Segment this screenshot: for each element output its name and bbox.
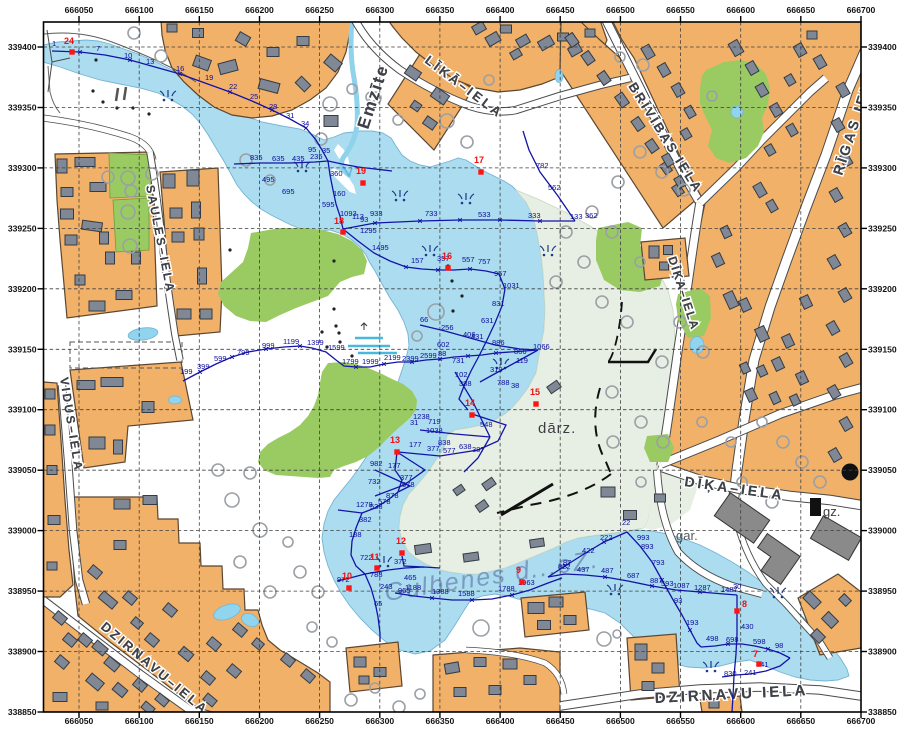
svg-text:193: 193 — [686, 618, 699, 627]
svg-text:339150: 339150 — [868, 344, 897, 354]
svg-text:666650: 666650 — [786, 716, 815, 726]
svg-text:666150: 666150 — [185, 5, 214, 15]
svg-text:893: 893 — [641, 542, 654, 551]
svg-text:733: 733 — [425, 209, 438, 218]
svg-text:338900: 338900 — [8, 647, 37, 657]
svg-text:1087: 1087 — [673, 581, 690, 590]
svg-text:13: 13 — [390, 435, 400, 445]
svg-text:1999: 1999 — [362, 357, 379, 366]
svg-text:157: 157 — [411, 256, 424, 265]
svg-text:666350: 666350 — [426, 716, 455, 726]
svg-text:666150: 666150 — [185, 716, 214, 726]
svg-text:87: 87 — [563, 558, 571, 567]
svg-text:98: 98 — [775, 641, 783, 650]
svg-text:339100: 339100 — [8, 405, 37, 415]
svg-text:2599: 2599 — [420, 351, 437, 360]
svg-text:757: 757 — [478, 257, 491, 266]
svg-text:339000: 339000 — [8, 526, 37, 536]
svg-text:666350: 666350 — [426, 5, 455, 15]
svg-text:243: 243 — [380, 582, 393, 591]
svg-text:1031: 1031 — [503, 281, 520, 290]
svg-text:799: 799 — [237, 348, 250, 357]
svg-text:2199: 2199 — [384, 353, 401, 362]
svg-text:16: 16 — [442, 251, 452, 261]
svg-text:666600: 666600 — [726, 716, 755, 726]
svg-text:15: 15 — [530, 387, 540, 397]
svg-text:177: 177 — [409, 440, 422, 449]
svg-text:10: 10 — [124, 51, 132, 60]
svg-text:31: 31 — [286, 111, 294, 120]
svg-text:339200: 339200 — [8, 284, 37, 294]
svg-text:18: 18 — [334, 216, 344, 226]
svg-text:1066: 1066 — [533, 342, 550, 351]
svg-text:602: 602 — [437, 340, 450, 349]
svg-text:866: 866 — [514, 347, 527, 356]
svg-text:666500: 666500 — [606, 5, 635, 15]
svg-text:65: 65 — [374, 599, 382, 608]
svg-text:1: 1 — [52, 39, 56, 48]
svg-text:666250: 666250 — [305, 716, 334, 726]
svg-text:372: 372 — [394, 557, 407, 566]
svg-text:338850: 338850 — [868, 707, 897, 717]
svg-text:435: 435 — [292, 154, 305, 163]
svg-text:598: 598 — [753, 637, 766, 646]
svg-text:1588: 1588 — [458, 589, 475, 598]
svg-text:788: 788 — [370, 570, 383, 579]
svg-text:235: 235 — [310, 152, 323, 161]
svg-text:339300: 339300 — [868, 163, 897, 173]
svg-text:599: 599 — [214, 354, 227, 363]
svg-text:11: 11 — [370, 552, 380, 562]
svg-text:465: 465 — [404, 573, 417, 582]
svg-text:339400: 339400 — [8, 42, 37, 52]
svg-text:732: 732 — [368, 477, 381, 486]
svg-text:957: 957 — [494, 269, 507, 278]
svg-text:593: 593 — [661, 579, 674, 588]
svg-text:22: 22 — [622, 518, 630, 527]
svg-text:35: 35 — [322, 146, 330, 155]
svg-text:1599: 1599 — [328, 343, 345, 352]
svg-text:339150: 339150 — [8, 344, 37, 354]
svg-text:338950: 338950 — [8, 586, 37, 596]
svg-text:14: 14 — [465, 398, 475, 408]
svg-text:25: 25 — [250, 92, 258, 101]
svg-text:1799: 1799 — [342, 357, 359, 366]
svg-text:498: 498 — [706, 634, 719, 643]
svg-text:338900: 338900 — [868, 647, 897, 657]
svg-text:256: 256 — [441, 323, 454, 332]
svg-text:430: 430 — [741, 622, 754, 631]
svg-text:339050: 339050 — [8, 465, 37, 475]
svg-text:333: 333 — [528, 211, 541, 220]
svg-text:9: 9 — [516, 565, 521, 575]
svg-text:339200: 339200 — [868, 284, 897, 294]
svg-text:886: 886 — [492, 338, 505, 347]
svg-text:19: 19 — [205, 73, 213, 82]
svg-text:7: 7 — [753, 649, 758, 659]
svg-text:22: 22 — [229, 82, 237, 91]
svg-text:7: 7 — [96, 44, 100, 53]
svg-text:698: 698 — [726, 635, 739, 644]
svg-text:666600: 666600 — [726, 5, 755, 15]
svg-text:338850: 338850 — [8, 707, 37, 717]
svg-text:999: 999 — [262, 341, 275, 350]
svg-text:666300: 666300 — [365, 716, 394, 726]
svg-text:548: 548 — [480, 420, 493, 429]
svg-text:19: 19 — [356, 166, 366, 176]
svg-text:487: 487 — [601, 566, 614, 575]
svg-text:1495: 1495 — [372, 243, 389, 252]
svg-text:377: 377 — [427, 444, 440, 453]
svg-text:362: 362 — [585, 211, 598, 220]
svg-text:830: 830 — [724, 669, 737, 678]
svg-text:495: 495 — [262, 175, 275, 184]
svg-text:666200: 666200 — [245, 716, 274, 726]
svg-text:24: 24 — [64, 36, 74, 46]
svg-text:8: 8 — [742, 599, 747, 609]
svg-text:28: 28 — [269, 102, 277, 111]
svg-text:66: 66 — [420, 315, 428, 324]
svg-text:666400: 666400 — [486, 716, 515, 726]
svg-text:666250: 666250 — [305, 5, 334, 15]
svg-text:388: 388 — [459, 379, 472, 388]
svg-text:695: 695 — [282, 187, 295, 196]
svg-text:1295: 1295 — [360, 226, 377, 235]
svg-text:160: 160 — [333, 189, 346, 198]
svg-text:199: 199 — [180, 367, 193, 376]
svg-text:666650: 666650 — [786, 5, 815, 15]
svg-text:666450: 666450 — [546, 5, 575, 15]
svg-text:638: 638 — [459, 442, 472, 451]
svg-text:119: 119 — [516, 356, 528, 365]
svg-text:666050: 666050 — [65, 716, 94, 726]
svg-text:222: 222 — [600, 533, 613, 542]
svg-text:339250: 339250 — [868, 223, 897, 233]
svg-text:933: 933 — [370, 209, 383, 218]
svg-text:241: 241 — [744, 668, 757, 677]
svg-text:339100: 339100 — [868, 405, 897, 415]
svg-text:13: 13 — [146, 57, 154, 66]
svg-text:1038: 1038 — [426, 426, 443, 435]
svg-text:1287: 1287 — [694, 583, 711, 592]
svg-text:788: 788 — [497, 378, 510, 387]
svg-text:339050: 339050 — [868, 465, 897, 475]
svg-text:339250: 339250 — [8, 223, 37, 233]
svg-text:12: 12 — [396, 536, 406, 546]
svg-text:16: 16 — [176, 64, 184, 73]
svg-text:782: 782 — [536, 161, 549, 170]
svg-text:666700: 666700 — [847, 5, 876, 15]
svg-text:666550: 666550 — [666, 716, 695, 726]
svg-text:437: 437 — [577, 565, 590, 574]
svg-text:339300: 339300 — [8, 163, 37, 173]
svg-text:835: 835 — [250, 153, 263, 162]
svg-text:339400: 339400 — [868, 42, 897, 52]
svg-text:34: 34 — [301, 119, 309, 128]
svg-text:177: 177 — [388, 461, 401, 470]
svg-text:93: 93 — [360, 215, 368, 224]
svg-text:338950: 338950 — [868, 586, 897, 596]
svg-text:538: 538 — [370, 502, 383, 511]
svg-text:687: 687 — [627, 571, 640, 580]
svg-text:339350: 339350 — [8, 103, 37, 113]
svg-text:10: 10 — [342, 571, 352, 581]
svg-text:666100: 666100 — [125, 716, 154, 726]
svg-text:635: 635 — [272, 154, 285, 163]
svg-text:339350: 339350 — [868, 103, 897, 113]
svg-text:631: 631 — [481, 316, 494, 325]
svg-text:dārz.: dārz. — [538, 420, 576, 437]
svg-text:422: 422 — [582, 546, 595, 555]
svg-text:562: 562 — [548, 183, 561, 192]
svg-text:666400: 666400 — [486, 5, 515, 15]
svg-text:102: 102 — [455, 370, 468, 379]
svg-text:382: 382 — [359, 515, 372, 524]
svg-text:965: 965 — [398, 586, 411, 595]
svg-text:557: 557 — [462, 255, 475, 264]
svg-text:38: 38 — [511, 381, 519, 390]
svg-text:666050: 666050 — [65, 5, 94, 15]
svg-text:666450: 666450 — [546, 716, 575, 726]
svg-text:982: 982 — [370, 459, 383, 468]
svg-text:406: 406 — [463, 330, 476, 339]
svg-text:17: 17 — [474, 155, 484, 165]
svg-text:831: 831 — [492, 299, 505, 308]
svg-text:399: 399 — [197, 362, 210, 371]
svg-text:666700: 666700 — [847, 716, 876, 726]
svg-text:666500: 666500 — [606, 716, 635, 726]
svg-text:133: 133 — [570, 212, 583, 221]
svg-text:1788: 1788 — [498, 584, 515, 593]
svg-text:1388: 1388 — [432, 587, 449, 596]
svg-text:1399: 1399 — [307, 338, 324, 347]
svg-text:595: 595 — [322, 200, 335, 209]
svg-text:678: 678 — [402, 480, 415, 489]
svg-text:387: 387 — [472, 445, 485, 454]
svg-text:188: 188 — [349, 530, 362, 539]
svg-text:1199: 1199 — [283, 337, 299, 346]
svg-text:993: 993 — [637, 533, 650, 542]
svg-text:360: 360 — [330, 169, 343, 178]
svg-text:319: 319 — [490, 365, 503, 374]
svg-text:88: 88 — [438, 349, 446, 358]
svg-text:793: 793 — [652, 558, 665, 567]
svg-text:666100: 666100 — [125, 5, 154, 15]
svg-text:93: 93 — [674, 596, 682, 605]
svg-text:666300: 666300 — [365, 5, 394, 15]
svg-text:533: 533 — [478, 210, 491, 219]
svg-text:gz.: gz. — [823, 504, 840, 519]
svg-text:339000: 339000 — [868, 526, 897, 536]
svg-text:666200: 666200 — [245, 5, 274, 15]
svg-text:2399: 2399 — [402, 354, 419, 363]
svg-text:30: 30 — [733, 582, 741, 591]
svg-text:731: 731 — [452, 356, 465, 365]
svg-text:719: 719 — [428, 417, 441, 426]
svg-text:666550: 666550 — [666, 5, 695, 15]
svg-text:577: 577 — [443, 446, 456, 455]
svg-text:1238: 1238 — [413, 412, 430, 421]
